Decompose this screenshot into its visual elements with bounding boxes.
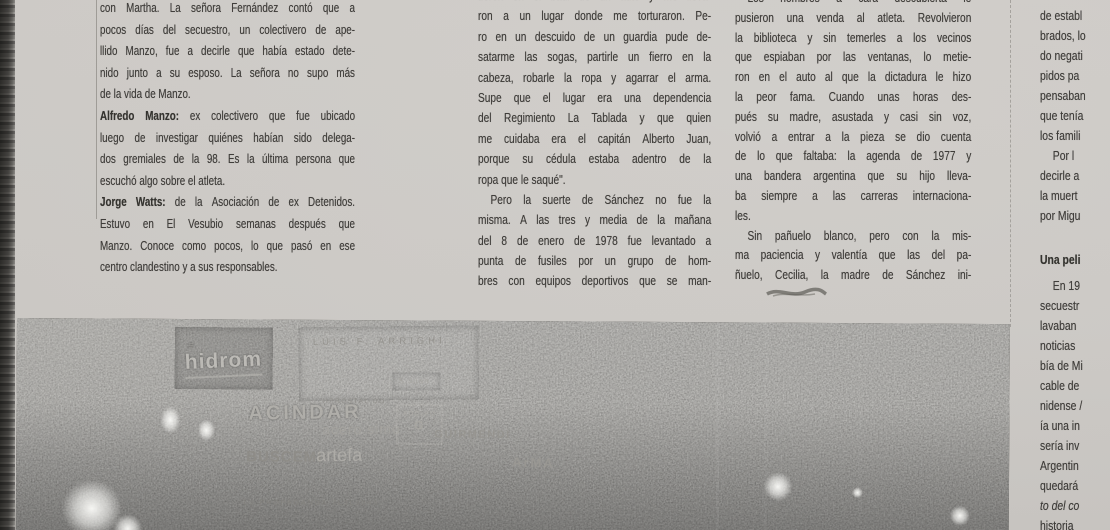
text-line: escuchó algo sobre el atleta.: [100, 171, 355, 193]
text-line: los famili: [1040, 126, 1110, 146]
stadium-billboards-photo: hidrom LUIS F. ARRIGHI S.Juan ACINDAR II…: [16, 318, 1010, 530]
text-line: ñuelo,Cecilia,lamadredeSánchezini-: [735, 265, 971, 285]
column-divider-right: [1010, 0, 1011, 327]
text-line: del8deenerode1978fuelevantadoa: [478, 231, 711, 251]
text-line: pidos pa: [1040, 66, 1110, 86]
text-line: Por l: [1040, 146, 1110, 166]
photo-flare: [194, 415, 218, 445]
text-line: llidoManzo,fueadecirlequehabíaestadodete…: [100, 41, 355, 63]
text-line: luegodeinvestigarquiéneshabíansidodelega…: [100, 128, 355, 150]
text-line: sería inv: [1040, 436, 1110, 456]
text-line: de establ: [1040, 6, 1110, 26]
text-line: Sinpañueloblanco,peroconlamis-: [735, 226, 971, 246]
text-line: historia: [1040, 516, 1110, 530]
text-line: pocosdíasdelsecuestro,uncolectiverodeape…: [100, 20, 355, 42]
text-line: pusieronunavendaalatleta.Revolvieron: [735, 8, 971, 28]
billboard-guirmendi: GUIRMENDI: [434, 429, 511, 441]
text-line: En 19: [1040, 276, 1110, 296]
text-line: lavaban: [1040, 316, 1110, 336]
text-line: secuestr: [1040, 296, 1110, 316]
text-line: volvióaentraralapiezasediocuenta: [735, 127, 971, 147]
billboard-adolfo-top: ADOLFO: [403, 410, 436, 417]
photo-flare: [946, 502, 974, 530]
article-column-right: Loshombresacaradescubiertalepusieronunav…: [735, 0, 971, 285]
text-line: queespiabanporlasventanas,lometie-: [735, 47, 971, 67]
text-line: mecuidabaeraelcapitánAlbertoJuan,: [478, 129, 711, 149]
photo-flare: [156, 401, 184, 439]
text-line: bresconequiposdeportivosqueseman-: [478, 271, 711, 291]
photo-flare: [850, 485, 865, 500]
billboard-acero: acero simo: [322, 421, 401, 438]
text-line: JorgeWatts:delaAsociacióndeexDetenidos.: [100, 192, 355, 214]
text-line: nidense /: [1040, 396, 1110, 416]
text-line: pensaban: [1040, 86, 1110, 106]
billboard-luis-f-arrighi: LUIS F. ARRIGHI: [313, 335, 446, 348]
text-line: brados, lo: [1040, 26, 1110, 46]
text-line: Manzo.Conocecomopocos,loquepasóenese: [100, 236, 355, 258]
text-line: EstuvoenElVesubiosemanasdespuésque: [100, 214, 355, 236]
text-line: la muert: [1040, 186, 1110, 206]
ink-smudge: [765, 285, 829, 301]
billboard-credit-line: L2 PROPAGANDA 7L3L3043: [244, 499, 379, 507]
scan-edge-shadow: [0, 0, 15, 530]
text-line: Una peli: [1040, 250, 1110, 270]
text-line: [1040, 226, 1110, 246]
text-line: porquesucédulaestabaadentrodela: [478, 149, 711, 169]
column-divider-left: [96, 0, 97, 219]
text-line: to del co: [1040, 496, 1110, 516]
article-column-clipped-edge: de establbrados, lodo negatipidos papens…: [1040, 6, 1110, 530]
text-line: de la vida de Manzo.: [100, 84, 355, 106]
text-line: que tenía: [1040, 106, 1110, 126]
billboard-sjuan: S.Juan: [399, 376, 430, 385]
text-line: do negati: [1040, 46, 1110, 66]
text-line: satarmelassogas,partirleunfierroenla: [478, 47, 711, 67]
text-line: ía una in: [1040, 416, 1110, 436]
text-line: bía de Mi: [1040, 356, 1110, 376]
text-line: por Migu: [1040, 206, 1110, 226]
text-line: quedará: [1040, 476, 1110, 496]
text-line: Loshombresacaradescubiertale: [735, 0, 971, 8]
text-line: AlfredoManzo:excolectiveroquefueubicado: [100, 106, 355, 128]
billboard-buscemi: BUSCEMI: [246, 448, 322, 465]
text-line: ronenelautoalqueladictaduralehizo: [735, 67, 971, 87]
text-line: dosgremialesdela98.Eslaúltimapersonaque: [100, 149, 355, 171]
text-line: nidojuntoasuesposo.Laseñoranosupomás: [100, 63, 355, 85]
text-line: misma.Alastresymediadelamañana: [478, 210, 711, 230]
text-line: Argentin: [1040, 456, 1110, 476]
billboard-hidrom: hidrom: [184, 339, 263, 379]
text-line: noticias: [1040, 336, 1110, 356]
text-line: PerolasuertedeSáncheznofuela: [478, 190, 711, 210]
text-line: unabanderaargentinaquesuhijolleva-: [735, 166, 971, 186]
billboard-artefa: artefa: [316, 445, 362, 467]
text-line: decirle a: [1040, 166, 1110, 186]
text-line: ronaunlugardondemetorturaron.Pe-: [478, 6, 711, 26]
article-column-left: conMartha.LaseñoraFernándezcontóqueapoco…: [100, 0, 355, 279]
text-line: ropa que le saqué".: [478, 170, 711, 190]
text-line: cable de: [1040, 376, 1110, 396]
article-column-middle: tieronenelbaúldeunautoymelleva-ronaunlug…: [478, 0, 711, 292]
billboard-arma: ArMA: [512, 454, 555, 471]
text-line: Supequeellugareraunadependencia: [478, 88, 711, 108]
text-line: basiemprealascarrerasinternaciona-: [735, 186, 971, 206]
text-line: deloquefaltaba:laagendade1977y: [735, 146, 971, 166]
text-line: cabeza,robarlelaropayagarrarelarma.: [478, 68, 711, 88]
billboard-prostal: IIPROSTAL OO: [322, 398, 385, 405]
text-line: les.: [735, 206, 971, 226]
text-line: roenundescuidodeunguardiapudede-: [478, 27, 711, 47]
text-line: puéssumadre,asustadaycasisinvoz,: [735, 107, 971, 127]
text-line: conMartha.LaseñoraFernándezcontóquea: [100, 0, 355, 20]
text-line: delRegimientoLaTabladayquequien: [478, 108, 711, 128]
text-line: centro clandestino y a sus responsables.: [100, 257, 355, 279]
text-line: puntadefusilesporungrupodehom-: [478, 251, 711, 271]
text-line: lapeorfama.Cuandounashorasdes-: [735, 87, 971, 107]
text-line: labibliotecaysintemerlesalosvecinos: [735, 28, 971, 48]
photo-flare: [758, 467, 798, 507]
scanned-newspaper-page: conMartha.LaseñoraFernándezcontóqueapoco…: [0, 0, 1110, 530]
text-line: mapacienciayvalentíaquelasdelpa-: [735, 245, 971, 265]
